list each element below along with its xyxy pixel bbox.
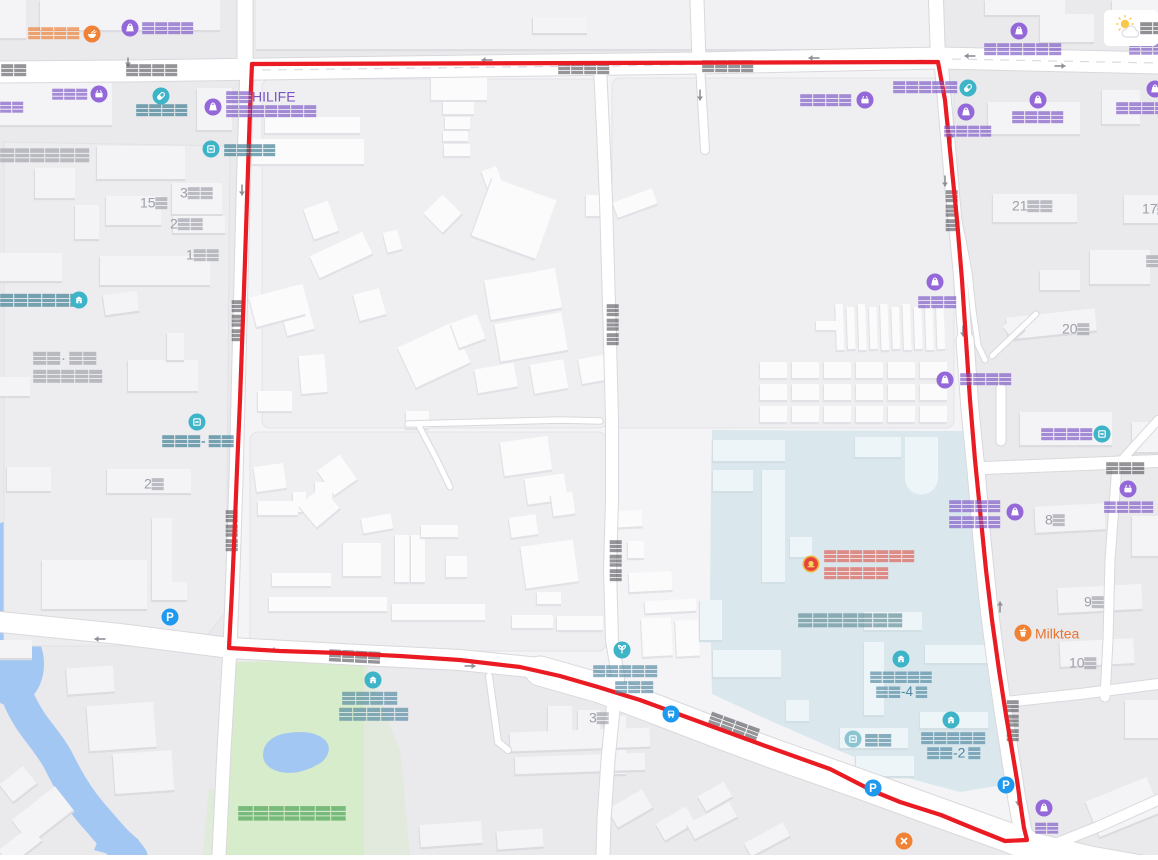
svg-text:10: 10 [1069, 654, 1085, 670]
svg-text:-4: -4 [901, 684, 913, 699]
svg-text:17: 17 [1142, 200, 1158, 216]
svg-text:P: P [869, 783, 877, 795]
svg-text:21: 21 [1012, 197, 1028, 213]
svg-text:-: - [201, 432, 206, 448]
svg-text:2: 2 [144, 475, 152, 491]
svg-text:1: 1 [186, 246, 194, 262]
svg-text:P: P [166, 612, 174, 624]
svg-text:8: 8 [1045, 511, 1053, 527]
svg-text:P: P [1002, 780, 1010, 792]
svg-text:9: 9 [1084, 593, 1092, 609]
svg-text:-2: -2 [953, 744, 966, 760]
svg-text:HILIFE: HILIFE [252, 88, 296, 104]
svg-text:2: 2 [170, 215, 178, 231]
svg-text:·: · [61, 350, 66, 367]
svg-text:3: 3 [589, 709, 597, 725]
svg-text:Milktea: Milktea [1035, 625, 1080, 641]
svg-text:15: 15 [140, 194, 156, 210]
svg-text:3: 3 [180, 184, 188, 200]
svg-text:20: 20 [1062, 320, 1078, 336]
